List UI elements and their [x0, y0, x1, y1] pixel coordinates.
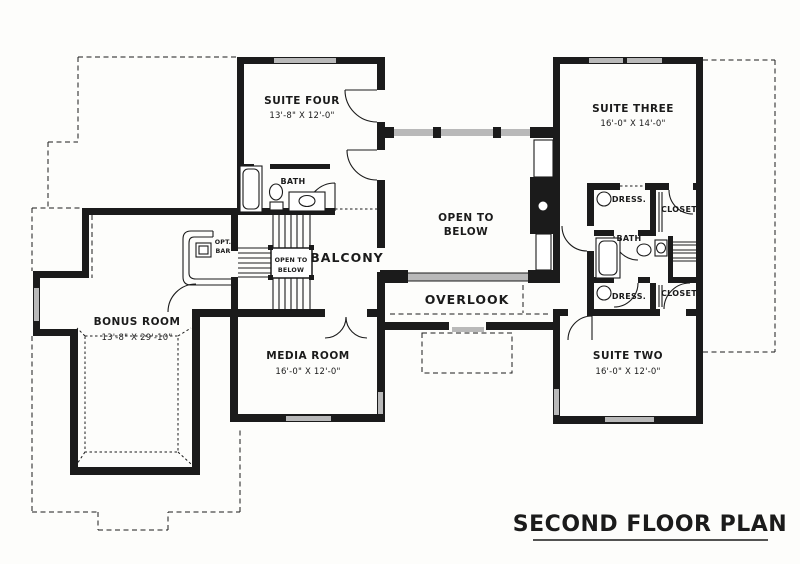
- chimney-flue: [539, 202, 548, 211]
- floor-plan-canvas: SUITE FOUR 13'-8" X 12'-0" BATH SUITE TH…: [0, 0, 800, 564]
- stair-open-to-below-line2: BELOW: [278, 267, 304, 274]
- suite-four-door-lower: [347, 150, 377, 180]
- media-room-label: MEDIA ROOM: [266, 350, 349, 362]
- closet-bottom-label: CLOSET: [661, 289, 697, 298]
- fireplace-chimney: [530, 140, 556, 270]
- closet-top-label: CLOSET: [661, 205, 697, 214]
- suite-four-door-upper: [345, 90, 377, 122]
- opt-bar-label-line2: BAR: [215, 248, 230, 255]
- bath-right-label: BATH: [616, 234, 641, 243]
- media-room-dims: 16'-0" X 12'-0": [275, 367, 340, 377]
- dress-bottom-stool-symbol: [597, 286, 611, 300]
- bonus-room-door: [168, 284, 196, 312]
- suite-two-dims: 16'-0" X 12'-0": [595, 367, 660, 377]
- media-room-double-door: [325, 317, 367, 338]
- hall-bath-door: [562, 226, 587, 251]
- balcony-label: BALCONY: [310, 250, 383, 265]
- bonus-room-dims: 13'-8" X 29'-10": [102, 333, 173, 343]
- vanity-upper-symbol: [289, 192, 325, 211]
- bathtub-right-symbol: [596, 238, 620, 278]
- open-to-below-label-line1: OPEN TO: [438, 212, 494, 224]
- opt-bar-label-line1: OPT.: [215, 239, 232, 246]
- plan-title: SECOND FLOOR PLAN: [513, 512, 787, 537]
- open-to-below-label-line2: BELOW: [444, 226, 489, 238]
- bonus-room-label: BONUS ROOM: [94, 316, 181, 328]
- toilet-right-symbol: [655, 240, 667, 256]
- suite-two-label: SUITE TWO: [593, 350, 663, 362]
- dress-top-stool-symbol: [597, 192, 611, 206]
- toilet-upper-symbol: [270, 184, 284, 210]
- windows: [33, 57, 665, 423]
- plan-title-block: SECOND FLOOR PLAN: [513, 512, 787, 540]
- bathtub-upper-symbol: [240, 166, 262, 212]
- suite-four-label: SUITE FOUR: [264, 95, 340, 107]
- suite-three-label: SUITE THREE: [592, 103, 674, 115]
- bath-upper-label: BATH: [280, 177, 305, 186]
- balcony-railing: [408, 273, 528, 281]
- dress-top-label: DRESS.: [612, 195, 646, 204]
- suite-two-door: [568, 316, 592, 340]
- suite-three-dims: 16'-0" X 14'-0": [600, 119, 665, 129]
- sink-right-symbol: [637, 244, 651, 256]
- stair-open-to-below-line1: OPEN TO: [275, 257, 308, 264]
- linen-shelves: [673, 242, 700, 261]
- overlook-label: OVERLOOK: [425, 292, 510, 307]
- suite-four-dims: 13'-8" X 12'-0": [269, 111, 334, 121]
- dress-bottom-label: DRESS.: [612, 292, 646, 301]
